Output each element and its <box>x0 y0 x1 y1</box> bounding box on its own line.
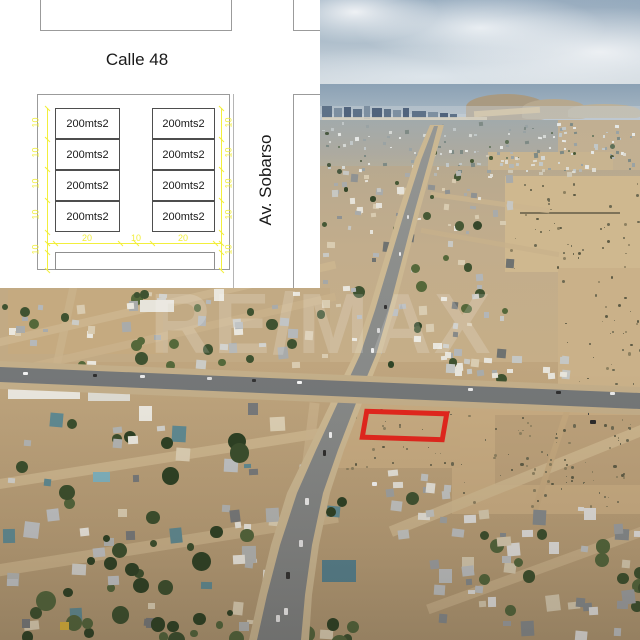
house <box>126 530 135 539</box>
shrub <box>571 476 574 479</box>
house <box>548 373 555 379</box>
house <box>49 413 63 428</box>
dim-line <box>47 108 48 270</box>
house <box>630 136 632 138</box>
tree <box>82 618 93 629</box>
house <box>606 132 608 133</box>
tree <box>455 221 465 231</box>
vehicle <box>399 252 401 256</box>
dim-label: 10 <box>32 244 41 254</box>
house <box>445 190 451 194</box>
house <box>573 132 576 134</box>
house <box>579 169 582 172</box>
shrub <box>533 489 536 492</box>
house <box>567 172 572 177</box>
house <box>355 137 359 142</box>
house <box>469 134 472 137</box>
house <box>558 133 562 137</box>
shrub <box>428 447 429 448</box>
house <box>470 205 476 209</box>
shrub <box>351 467 354 470</box>
house <box>331 190 337 197</box>
tree <box>187 543 195 551</box>
vehicle <box>556 391 561 394</box>
vehicle <box>286 572 290 579</box>
shrub <box>616 476 618 478</box>
shrub <box>628 352 631 355</box>
house <box>133 475 140 482</box>
house <box>327 242 335 248</box>
house <box>580 546 588 553</box>
house <box>363 139 366 142</box>
house <box>503 621 512 626</box>
house <box>148 603 155 609</box>
tree <box>151 617 166 632</box>
shrub <box>593 480 594 481</box>
shrub <box>564 459 566 461</box>
shrub <box>510 249 513 252</box>
house <box>372 258 376 261</box>
house <box>558 161 560 163</box>
house <box>348 225 352 230</box>
house <box>538 137 542 140</box>
dim-label: 10 <box>225 147 234 157</box>
shrub <box>374 457 375 458</box>
tree <box>617 573 628 584</box>
shrub <box>637 183 638 184</box>
house <box>350 141 353 145</box>
tree <box>370 196 376 202</box>
vehicle <box>93 374 97 377</box>
shrub <box>366 466 368 468</box>
house <box>464 192 467 195</box>
tree <box>464 263 472 271</box>
lot-cell: 200mts2 <box>55 108 120 139</box>
house <box>421 474 428 482</box>
tree <box>20 307 30 317</box>
house <box>497 536 511 546</box>
house <box>121 321 131 331</box>
house <box>564 170 566 171</box>
shrub <box>561 488 563 490</box>
shrub <box>372 448 375 451</box>
lot-cell: 200mts2 <box>55 139 120 170</box>
house <box>16 326 24 334</box>
house <box>500 221 506 225</box>
house <box>466 231 469 234</box>
shrub <box>563 252 565 254</box>
house <box>334 183 338 186</box>
house <box>426 483 436 494</box>
house <box>425 510 433 518</box>
house <box>342 182 348 187</box>
tree <box>159 632 169 640</box>
house <box>526 170 528 172</box>
house <box>506 175 513 184</box>
house <box>368 162 370 164</box>
house <box>235 522 242 528</box>
shrub <box>550 209 552 211</box>
vehicle <box>297 381 302 384</box>
house <box>614 523 623 533</box>
shrub <box>589 343 591 345</box>
house <box>467 189 470 191</box>
vehicle <box>590 420 596 424</box>
dim-label: 10 <box>225 244 234 254</box>
plan-block-east <box>293 94 320 288</box>
dim-label: 10 <box>32 209 41 219</box>
building <box>322 560 356 582</box>
house <box>44 479 52 487</box>
house <box>386 489 395 498</box>
house <box>87 326 94 334</box>
house <box>232 602 244 616</box>
house <box>322 130 324 132</box>
tree <box>344 187 349 192</box>
house <box>364 175 370 179</box>
tree <box>430 195 434 199</box>
tree <box>168 632 184 640</box>
house <box>477 163 481 166</box>
house <box>511 156 514 159</box>
vehicle <box>23 372 28 375</box>
tree <box>325 132 329 136</box>
house <box>585 165 589 169</box>
shrub <box>520 463 523 466</box>
house <box>584 508 597 520</box>
house <box>233 554 246 564</box>
vehicle <box>329 432 332 438</box>
house <box>493 210 499 217</box>
tree <box>240 529 253 542</box>
house <box>448 224 451 227</box>
house <box>523 131 526 133</box>
house <box>502 556 511 563</box>
house <box>229 510 241 523</box>
tree <box>480 531 489 540</box>
house <box>376 203 382 208</box>
shrub <box>604 424 607 427</box>
house <box>389 147 391 148</box>
shrub <box>526 457 529 460</box>
house <box>574 143 577 146</box>
house <box>501 160 504 162</box>
house <box>499 163 502 166</box>
house <box>460 150 464 154</box>
house <box>388 470 399 477</box>
shrub <box>622 349 624 351</box>
house <box>448 241 453 247</box>
house <box>439 614 448 624</box>
shrub <box>524 184 526 186</box>
tree <box>61 313 70 322</box>
house <box>456 171 461 176</box>
tree <box>337 169 342 174</box>
house <box>632 163 635 167</box>
house <box>474 585 483 592</box>
house <box>615 131 618 134</box>
shrub <box>450 414 452 416</box>
dim-label: 10 <box>32 147 41 157</box>
shrub <box>551 483 553 485</box>
house <box>350 197 355 203</box>
house <box>507 369 513 373</box>
building <box>60 622 69 630</box>
tree <box>610 144 615 149</box>
house <box>239 622 249 631</box>
house <box>509 164 514 168</box>
shrub <box>451 462 454 465</box>
house <box>500 146 503 149</box>
house <box>405 173 410 177</box>
house <box>383 162 387 165</box>
house <box>342 165 345 168</box>
house <box>38 305 44 311</box>
house <box>361 168 364 171</box>
tree <box>140 290 149 299</box>
tree <box>133 578 148 593</box>
vehicle <box>468 388 473 391</box>
plot-plan-inset: Calle 48 Av. Sobarso 200mts2200mts2200mt… <box>0 0 320 288</box>
tree <box>59 485 75 501</box>
shrub <box>566 482 567 483</box>
house <box>377 188 381 193</box>
vehicle <box>207 377 212 380</box>
house <box>542 169 545 172</box>
house <box>7 579 19 586</box>
house <box>497 348 506 357</box>
shrub <box>511 469 512 470</box>
house <box>244 464 251 469</box>
house <box>490 174 493 177</box>
house <box>126 302 134 309</box>
tree <box>470 159 474 163</box>
house <box>621 559 630 568</box>
tree <box>193 613 206 626</box>
house <box>601 148 604 150</box>
house <box>444 141 446 143</box>
dim-label: 20 <box>78 234 96 243</box>
shrub <box>549 463 552 466</box>
lot-cell: 200mts2 <box>152 108 215 139</box>
house <box>463 515 475 524</box>
dim-label: 10 <box>225 117 234 127</box>
house <box>108 576 119 586</box>
plan-block-northeast <box>293 0 320 31</box>
shrub <box>571 480 573 482</box>
house <box>2 529 14 543</box>
shrub <box>573 183 575 185</box>
house <box>30 339 37 345</box>
house <box>434 585 446 596</box>
house <box>507 204 513 211</box>
house <box>92 547 105 558</box>
shrub <box>613 465 616 468</box>
tree <box>104 557 117 570</box>
house <box>575 597 585 606</box>
house <box>562 127 566 131</box>
tree <box>63 588 72 597</box>
lot-cell: 200mts2 <box>55 201 120 232</box>
house <box>72 320 80 326</box>
tree <box>103 535 110 542</box>
shrub <box>609 205 612 208</box>
tree <box>112 606 129 623</box>
house <box>488 597 497 607</box>
tree <box>190 630 197 637</box>
listing-image: RE/MAX Calle 48 Av. Sobarso 200mts2200mt… <box>0 0 640 640</box>
lot-cell: 200mts2 <box>55 170 120 201</box>
vehicle <box>610 392 615 395</box>
house <box>564 148 566 150</box>
house <box>487 170 491 173</box>
house <box>23 522 40 540</box>
tree <box>192 552 211 571</box>
house <box>471 163 475 167</box>
house <box>594 144 598 148</box>
house <box>572 171 575 174</box>
tree <box>337 497 347 507</box>
house <box>201 582 212 589</box>
house <box>364 147 367 150</box>
house <box>342 122 344 125</box>
house <box>548 168 551 170</box>
tree <box>36 591 56 611</box>
house <box>616 151 619 154</box>
house <box>157 426 165 432</box>
house <box>175 448 190 461</box>
shrub <box>629 427 632 430</box>
house <box>22 619 30 628</box>
house <box>474 215 478 219</box>
house <box>387 136 390 138</box>
house <box>539 172 543 175</box>
vehicle <box>299 540 303 547</box>
dim-label: 10 <box>127 234 145 243</box>
tree <box>551 132 553 134</box>
tree <box>229 631 244 640</box>
house <box>506 145 509 147</box>
house <box>373 253 379 257</box>
house <box>478 197 482 200</box>
house <box>443 485 451 492</box>
remax-watermark: RE/MAX <box>150 282 493 367</box>
tree <box>596 539 610 553</box>
house <box>325 145 328 147</box>
house <box>172 426 187 442</box>
house <box>522 530 533 537</box>
property-outline <box>359 409 449 443</box>
house <box>533 509 547 525</box>
house <box>471 193 477 198</box>
tree <box>134 292 140 298</box>
house <box>534 153 538 158</box>
house <box>574 631 587 640</box>
house <box>524 127 527 130</box>
house <box>525 141 529 144</box>
shrub <box>606 506 608 508</box>
house <box>440 152 442 154</box>
house <box>616 601 628 610</box>
house <box>560 151 564 155</box>
house <box>479 601 486 607</box>
house <box>8 478 15 484</box>
house <box>491 373 497 378</box>
shrub <box>522 417 524 419</box>
house <box>545 594 561 612</box>
house <box>46 508 59 521</box>
house <box>139 406 152 422</box>
shrub <box>614 435 616 437</box>
vehicle <box>407 215 409 219</box>
house <box>43 329 48 332</box>
shrub <box>565 323 566 324</box>
house <box>497 152 500 155</box>
house <box>430 560 440 570</box>
debris-line <box>520 212 620 214</box>
house <box>444 134 446 136</box>
lot-cell: 200mts2 <box>152 139 215 170</box>
house <box>368 136 370 137</box>
shrub <box>571 466 574 469</box>
house <box>169 527 183 543</box>
house <box>530 164 534 166</box>
house <box>614 628 621 636</box>
house <box>72 564 87 575</box>
tree <box>568 150 570 152</box>
house <box>515 163 518 166</box>
shrub <box>566 476 567 477</box>
shrub <box>605 315 608 318</box>
tree <box>523 570 536 583</box>
house <box>244 560 253 568</box>
house <box>439 569 452 583</box>
house <box>588 607 598 615</box>
house <box>500 316 504 321</box>
tree <box>22 631 34 640</box>
house <box>390 500 402 511</box>
tree <box>489 156 493 160</box>
house <box>479 122 483 127</box>
lot-cell: 200mts2 <box>152 170 215 201</box>
house <box>343 144 346 148</box>
house <box>632 133 636 136</box>
house <box>370 230 373 234</box>
house <box>446 163 449 167</box>
house <box>452 179 456 184</box>
shrub <box>605 306 607 308</box>
shrub <box>630 424 631 425</box>
house <box>467 590 474 594</box>
shrub <box>527 422 529 424</box>
house <box>382 142 385 145</box>
house <box>128 435 138 443</box>
house <box>566 167 569 170</box>
shrub <box>562 280 565 283</box>
house <box>24 440 31 446</box>
street-label-calle-48: Calle 48 <box>63 50 211 70</box>
shrub <box>555 437 558 440</box>
building <box>93 472 110 482</box>
house <box>266 508 279 523</box>
house <box>351 174 358 182</box>
house <box>549 542 559 554</box>
tree <box>125 563 139 577</box>
house <box>396 187 403 194</box>
tree <box>167 621 179 633</box>
shrub <box>403 446 405 448</box>
house <box>405 130 409 134</box>
